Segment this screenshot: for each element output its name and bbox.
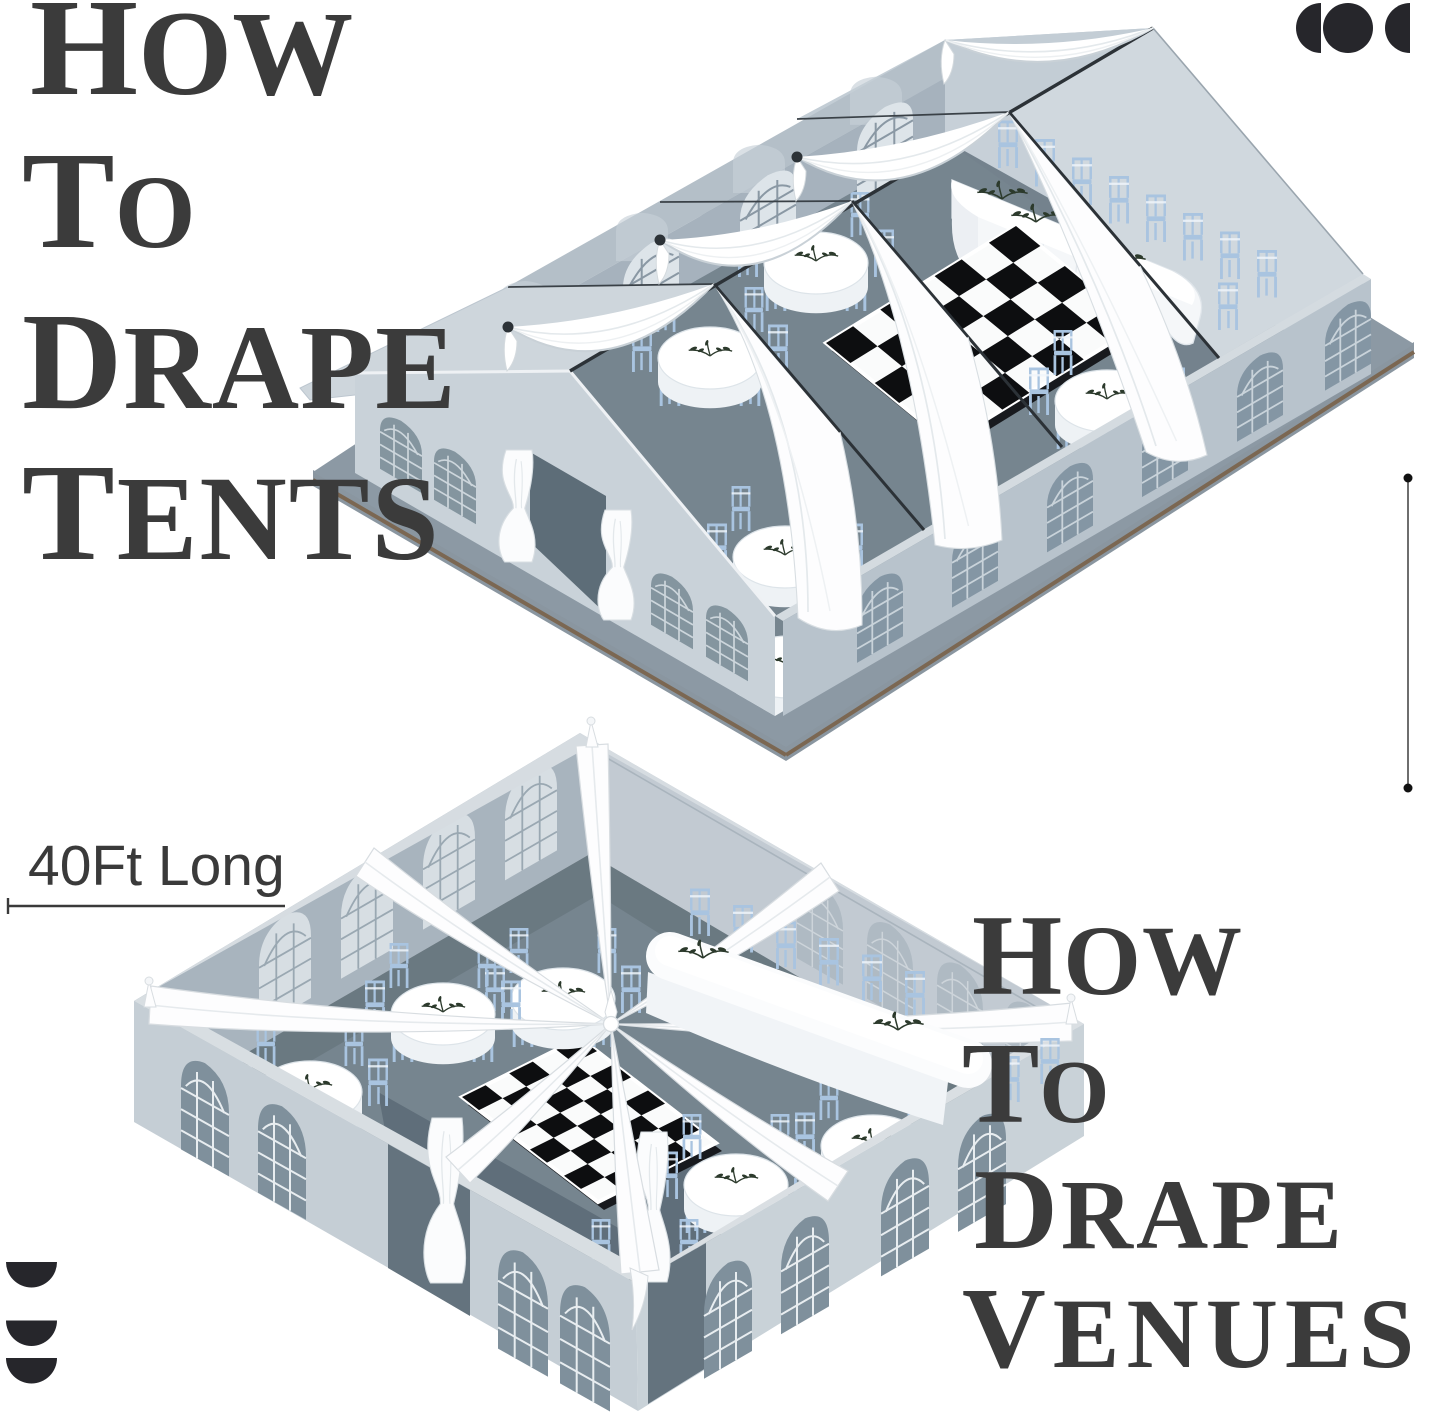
svg-text:TENTS: TENTS — [22, 436, 441, 590]
svg-text:HOW: HOW — [30, 0, 353, 125]
svg-text:VENUES: VENUES — [962, 1265, 1421, 1393]
svg-text:DRAPE: DRAPE — [974, 1146, 1345, 1274]
svg-text:40Ft Long: 40Ft Long — [28, 834, 285, 898]
svg-text:HOW: HOW — [972, 892, 1243, 1020]
svg-text:DRAPE: DRAPE — [22, 285, 457, 439]
